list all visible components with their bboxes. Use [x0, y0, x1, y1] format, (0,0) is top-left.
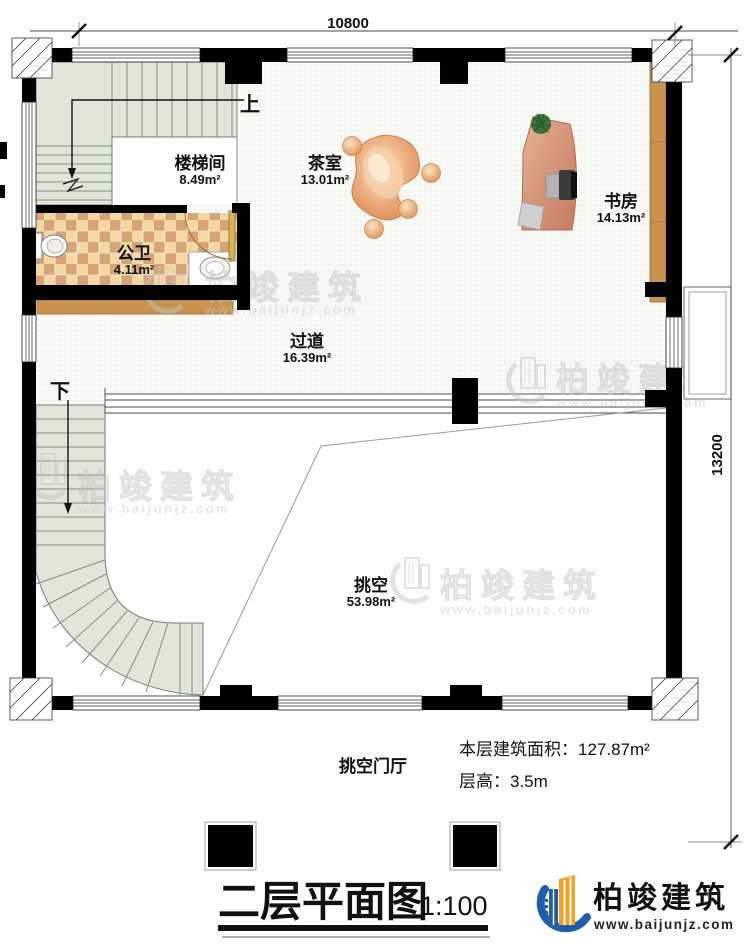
watermark-url: www.baijunjz.com [439, 602, 592, 617]
foyer-label: 挑空门厅 [339, 756, 407, 776]
column [225, 62, 262, 84]
room-label-bath: 公卫 [117, 244, 151, 263]
column [450, 685, 482, 696]
corner-hatch [652, 40, 692, 82]
watermark-text: 柏竣建筑 [78, 468, 242, 505]
toilet [33, 233, 67, 259]
dimension-top: 10800 [327, 15, 369, 32]
dimension-right: 13200 [709, 434, 726, 476]
title-underline-shadow [222, 936, 490, 938]
tile-patch [36, 393, 105, 406]
monitor-back [571, 172, 577, 198]
railing-wall-junction [645, 390, 666, 407]
floor-height-note: 层高：3.5m [459, 772, 548, 791]
corner-hatch [12, 38, 52, 78]
room-area-bath: 4.11m² [114, 262, 155, 277]
room-label-corridor: 过道 [290, 331, 324, 351]
brand-logo-icon [540, 875, 587, 928]
brand-url: www.baijunjz.com [593, 917, 735, 932]
watermark-text: 柏竣建筑 [440, 567, 604, 604]
watermark-url: www.baijunjz.com [77, 501, 230, 516]
floor-height-label: 层高： [459, 772, 510, 791]
room-label-tea: 茶室 [308, 153, 342, 173]
wood-strip [37, 300, 233, 314]
window [22, 102, 36, 228]
desk-plant [531, 114, 551, 134]
bathroom-wall-north [36, 205, 187, 213]
tea-stool [422, 164, 441, 183]
stair-up-label: 上 [240, 93, 260, 116]
corner-hatch [652, 678, 698, 720]
watermark-url: www.baijunjz.com [204, 302, 357, 317]
tea-stool [365, 220, 384, 239]
window [666, 317, 682, 368]
foyer-columns [205, 822, 500, 870]
room-area-stairwell: 8.49m² [179, 172, 221, 187]
tea-stool [399, 200, 418, 219]
drawing-scale: 1:100 [420, 891, 488, 921]
drawing-title: 二层平面图 [218, 878, 428, 925]
study-wardrobe [650, 62, 666, 302]
room-label-void: 挑空 [354, 575, 388, 595]
column [220, 685, 252, 696]
window [502, 696, 628, 710]
window [72, 48, 200, 62]
bay-window [684, 287, 731, 399]
column [208, 825, 253, 867]
bathroom-wall-south [22, 285, 250, 300]
desk-chair [518, 202, 544, 230]
stair-down-label: 下 [50, 381, 70, 403]
plan-notes: 挑空门厅 本层建筑面积：127.87m² 层高：3.5m [339, 740, 650, 791]
window [287, 48, 413, 62]
room-area-corridor: 16.39m² [283, 350, 332, 365]
column [440, 62, 468, 84]
door-leaf [229, 211, 235, 261]
floor-area-label: 本层建筑面积： [459, 740, 578, 759]
column [453, 825, 497, 867]
room-label-stairwell: 楼梯间 [175, 153, 226, 173]
floor-area-note: 本层建筑面积：127.87m² [459, 740, 650, 759]
monitor-screen [546, 174, 559, 198]
tea-stool [343, 137, 362, 156]
corner-hatch [10, 678, 52, 720]
title-underline [218, 925, 488, 931]
floor-height-value: 3.5m [510, 772, 548, 791]
room-area-tea: 13.01m² [301, 172, 350, 187]
window [73, 696, 200, 710]
window [505, 48, 632, 62]
floor-area-value: 127.87m² [578, 740, 650, 759]
brand-logo: 柏竣建筑 www.baijunjz.com [540, 875, 735, 932]
brand-name: 柏竣建筑 [593, 881, 729, 915]
window [22, 315, 36, 362]
window [278, 696, 422, 710]
title-block: 二层平面图 1:100 [218, 878, 490, 938]
floor-plan-page: 柏竣建筑 www.baijunjz.com 柏竣建筑 www.baijunjz.… [0, 0, 750, 950]
railing-column [452, 378, 478, 424]
room-area-study: 14.13m² [597, 210, 646, 225]
floor-plan-drawing: 柏竣建筑 www.baijunjz.com 柏竣建筑 www.baijunjz.… [0, 0, 750, 950]
room-label-study: 书房 [604, 191, 638, 211]
room-area-void: 53.98m² [347, 594, 396, 609]
